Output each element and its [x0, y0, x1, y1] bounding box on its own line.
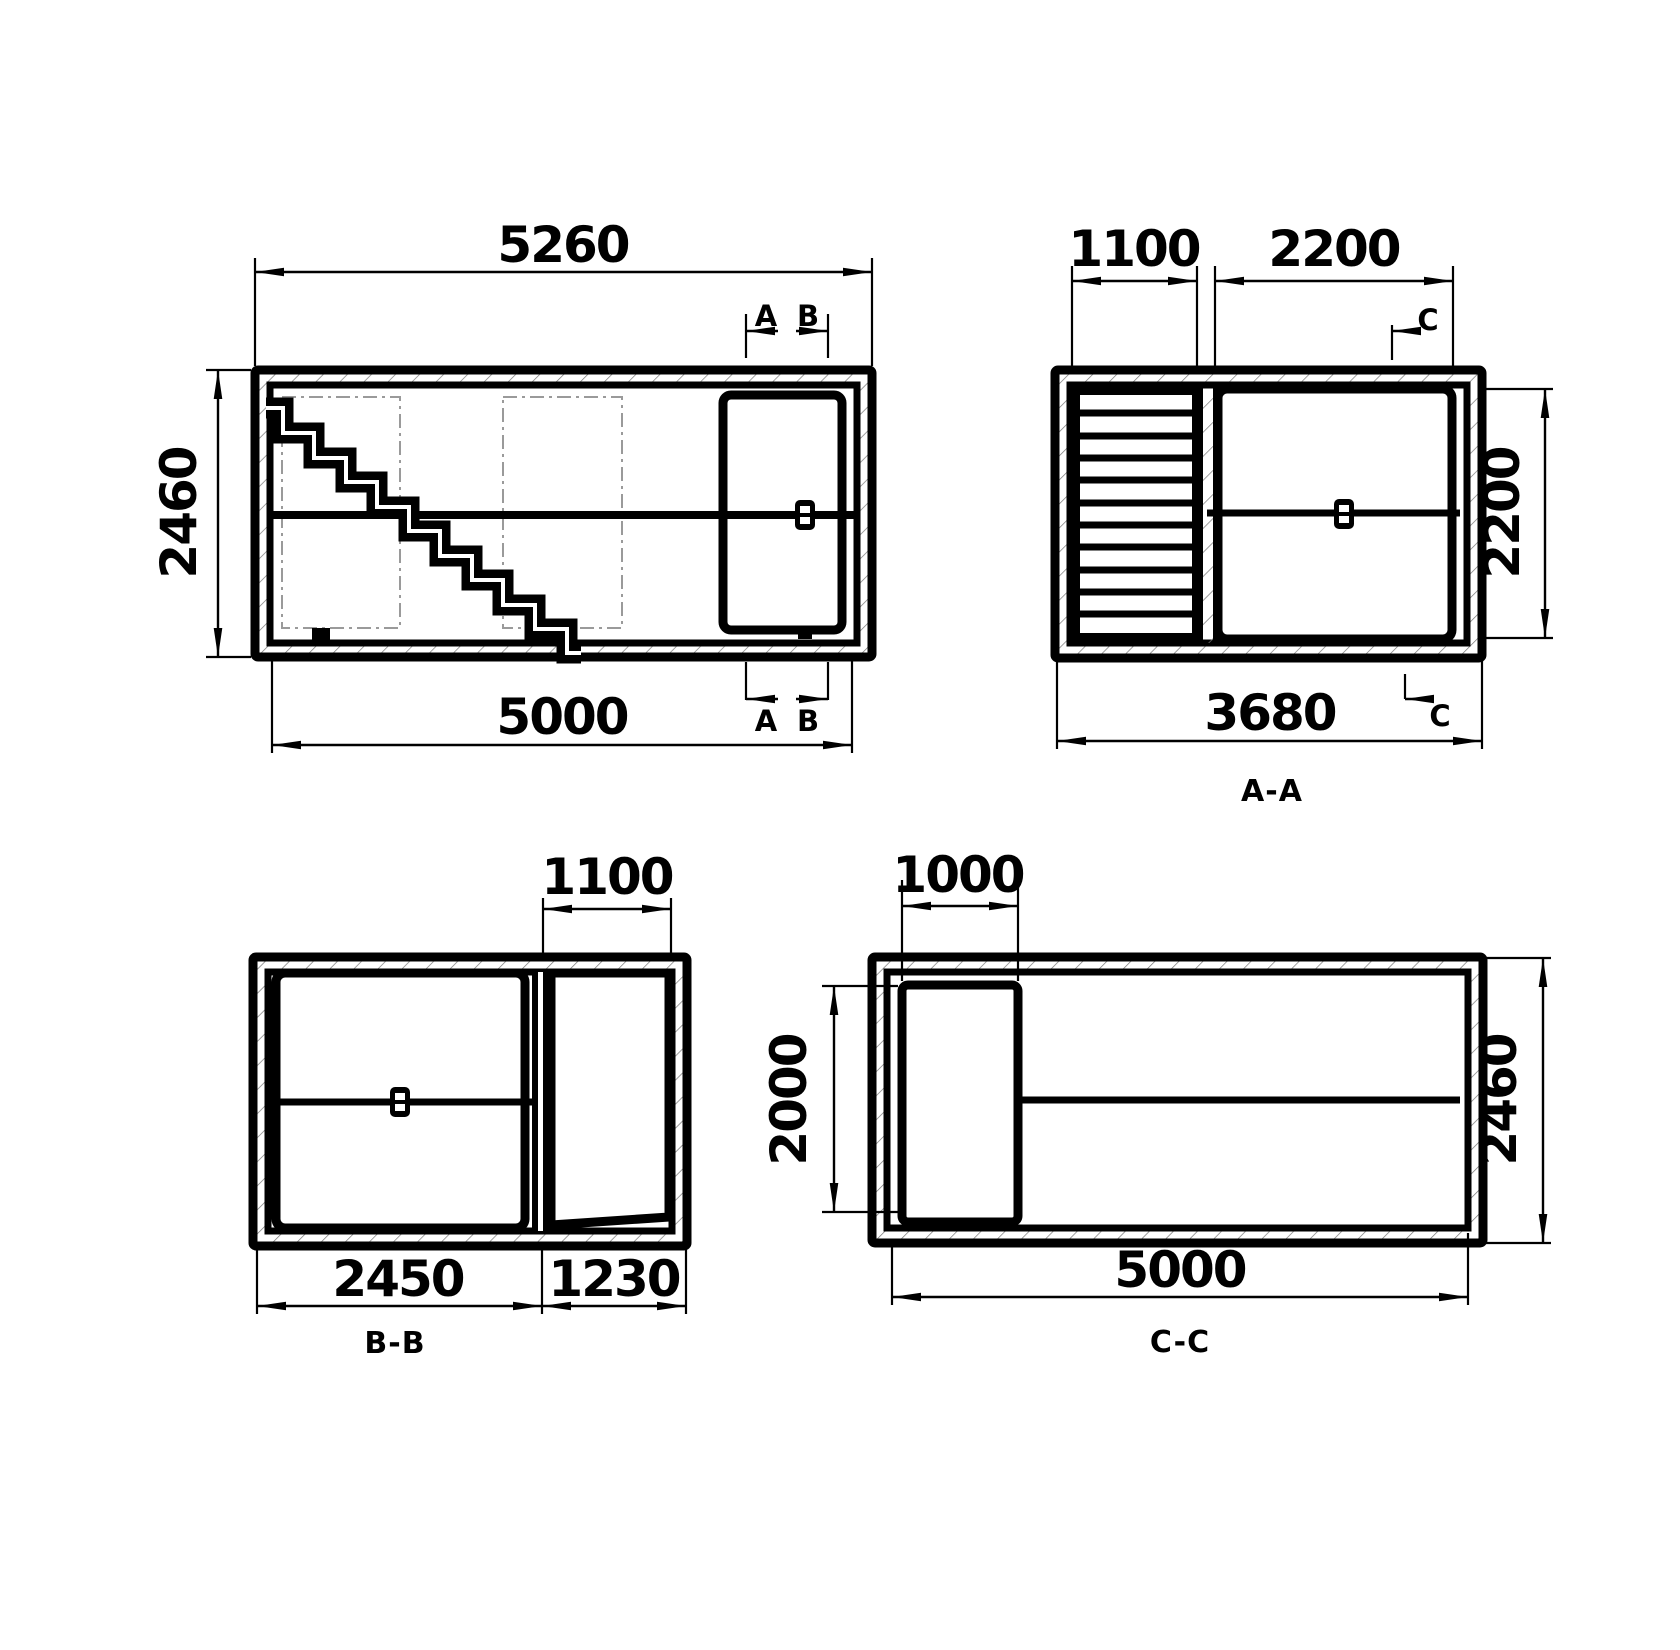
drawing-sheet: 5260 2460 5000 A B	[0, 0, 1680, 1650]
dim-cc-height-value: 2460	[1470, 1034, 1528, 1165]
dim-plan-top-value: 5260	[497, 216, 628, 274]
dim-aa-total-width-value: 3680	[1204, 684, 1335, 742]
dim-aa-stair-width-value: 1100	[1068, 220, 1199, 278]
aa-stair-shaft	[1076, 391, 1196, 637]
staircase-band-core	[266, 408, 581, 653]
bb-door-handle-icon	[390, 1087, 410, 1117]
aa-door-handle-icon	[1334, 499, 1354, 529]
dim-bb-door-width: 1100	[541, 848, 672, 953]
section-marker-ab-top: A B	[746, 299, 828, 358]
aa-stair-box	[1076, 391, 1196, 637]
section-marker-ab-bottom: A B	[746, 662, 828, 738]
dim-aa-opening-width-value: 2200	[1268, 220, 1399, 278]
marker-b-bottom: B	[797, 704, 819, 738]
dim-plan-bottom-value: 5000	[496, 688, 627, 746]
dim-bb-right-zone: 1230	[542, 1249, 686, 1314]
staircase	[266, 408, 581, 653]
dim-aa-total-width: 3680	[1057, 661, 1482, 749]
section-aa-view: 1100 2200 2200 3680 C	[1055, 220, 1553, 809]
dim-cc-door-width-value: 1000	[892, 846, 1023, 904]
technical-drawing-canvas: 5260 2460 5000 A B	[0, 0, 1680, 1650]
dim-cc-length-value: 5000	[1114, 1241, 1245, 1299]
marker-c-bottom: C	[1429, 699, 1450, 733]
section-marker-c-bottom: C	[1405, 674, 1451, 733]
dim-bb-right-zone-value: 1230	[548, 1250, 679, 1308]
cc-door-leaf	[902, 985, 1018, 1222]
plan-view: 5260 2460 5000 A B	[150, 216, 872, 753]
dim-plan-left-value: 2460	[150, 447, 208, 578]
dim-bb-door-width-value: 1100	[541, 848, 672, 906]
section-bb-label: B-B	[364, 1326, 425, 1361]
bb-open-door-leaf	[551, 973, 669, 1225]
plan-corner-block	[312, 628, 330, 640]
dim-bb-left-zone: 2450	[257, 1249, 542, 1314]
section-cc-view: 1000 2000 2460 5000 C-C	[760, 846, 1551, 1360]
dim-plan-top: 5260	[255, 216, 872, 366]
section-aa-label: A-A	[1241, 774, 1303, 809]
marker-a-bottom: A	[755, 704, 778, 738]
dim-cc-door-height-value: 2000	[760, 1034, 818, 1165]
marker-c-top: C	[1417, 303, 1438, 337]
section-marker-c-top: C	[1392, 303, 1439, 360]
section-bb-view: 1100 2450 1230 B-B	[253, 848, 687, 1361]
marker-b-top: B	[797, 299, 819, 333]
marker-a-top: A	[755, 299, 778, 333]
dim-aa-opening-width: 2200	[1215, 220, 1453, 366]
dim-plan-left: 2460	[150, 370, 251, 657]
dim-aa-opening-height-value: 2200	[1473, 447, 1531, 578]
door-handle-icon	[795, 500, 815, 530]
dim-aa-stair-width: 1100	[1068, 220, 1199, 366]
plan-door-sill-mark	[798, 628, 812, 639]
dim-bb-left-zone-value: 2450	[332, 1250, 463, 1308]
bb-divider-jamb	[535, 972, 546, 1231]
section-cc-label: C-C	[1150, 1325, 1210, 1360]
